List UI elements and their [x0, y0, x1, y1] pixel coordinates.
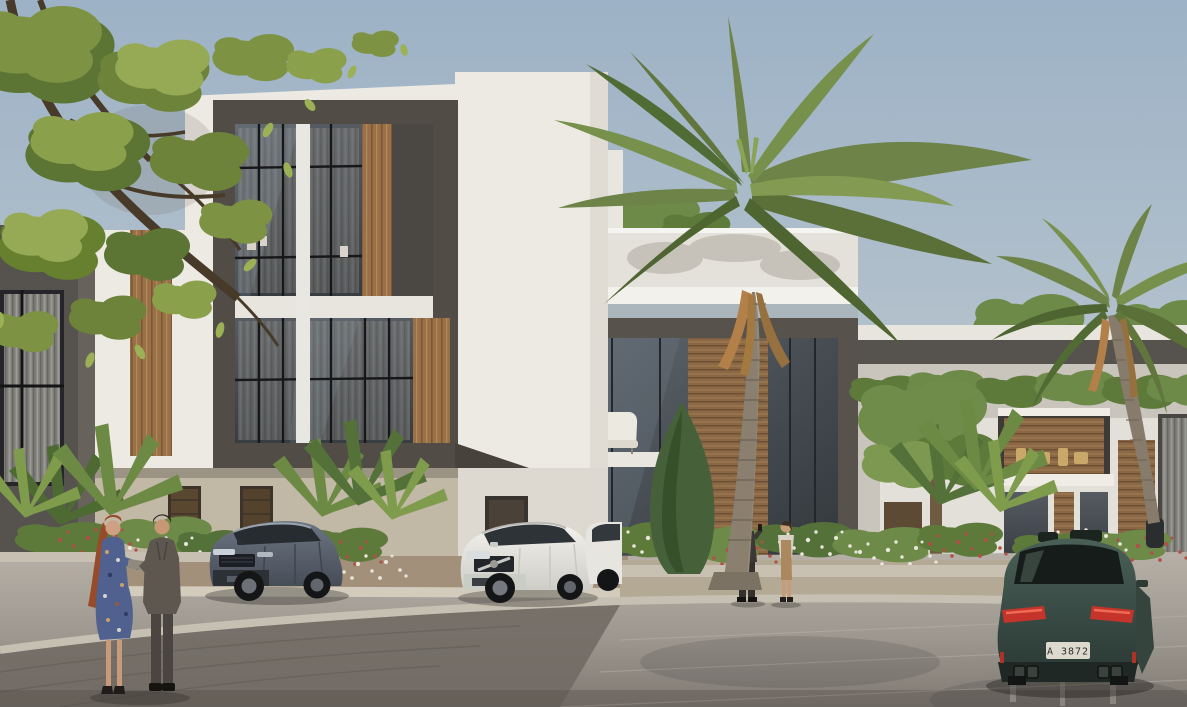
wheel [1008, 676, 1026, 685]
render-canvas: A 3872 [0, 0, 1187, 707]
left-villa-wood-strip-lower [413, 318, 450, 443]
side-mirror [237, 540, 245, 545]
reflector [1000, 652, 1004, 663]
trunk-base [708, 572, 762, 590]
side-mirror [490, 542, 498, 547]
second-white-car [586, 522, 623, 591]
left-villa-wood-strip-upper [362, 124, 392, 296]
flower-bed-center [587, 522, 1012, 577]
tan-dress [781, 540, 792, 580]
floor-slab [235, 296, 433, 318]
license-plate-text: A 3872 [1047, 647, 1089, 658]
wheel [1110, 676, 1128, 685]
architectural-render: A 3872 [0, 0, 1187, 707]
headlight [466, 551, 490, 559]
white-cross-mullion [296, 124, 310, 443]
grille [219, 554, 255, 567]
side-mirror [1136, 580, 1148, 587]
palm-shadow-on-road [640, 636, 940, 688]
headlight [213, 549, 235, 555]
reflector [1132, 652, 1136, 663]
suit-jacket [143, 537, 181, 614]
bed-curb [600, 565, 1012, 577]
parked-white-suv [458, 523, 598, 607]
